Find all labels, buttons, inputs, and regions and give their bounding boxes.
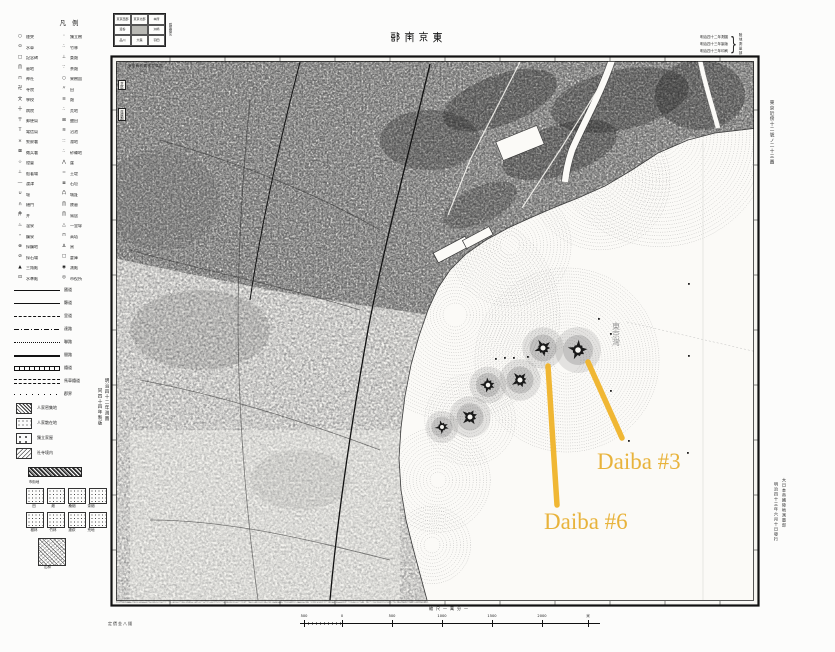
legend-symbol: □ xyxy=(14,56,26,61)
legend-symbol: ⊓ xyxy=(58,234,70,239)
legend-symbol: ⊗ xyxy=(14,245,26,250)
legend-line-row: 達路 xyxy=(14,323,116,336)
legend-line-row: 里道 xyxy=(14,310,116,323)
legend-row: ∘鑛泉⊓高塔 xyxy=(14,232,116,243)
legend-label: 畑 xyxy=(70,98,102,102)
legend-label: 砂礫地 xyxy=(70,151,102,155)
map-title xyxy=(391,32,442,42)
legend-label: 徴兵署 xyxy=(26,151,58,155)
legend-label: 高塔 xyxy=(70,235,102,239)
inmap-box-label-2: 荏原郡 xyxy=(118,108,126,121)
sheet-number-note: 東京近傍十二號ノ二十三圖 xyxy=(768,100,774,240)
legend-line-row: 縣道 xyxy=(14,297,116,310)
legend-line-label: 間路 xyxy=(64,353,72,357)
legend-pattern-label: 田 xyxy=(26,505,42,509)
index-grid-table: 東京西部東京北部本所澁谷洲崎品川大森羽田 xyxy=(113,13,166,47)
water-mark xyxy=(688,283,690,285)
island-center xyxy=(486,383,490,387)
legend-pattern-label: 竹林 xyxy=(45,529,61,533)
index-grid-cell: 洲崎 xyxy=(148,25,165,36)
legend-line-label: 鐵道 xyxy=(64,366,72,370)
legend-line-label: 縣道 xyxy=(64,301,72,305)
legend-symbol: ≣ xyxy=(58,182,70,187)
index-grid-cell: 品川 xyxy=(114,35,131,46)
legend-row: ⊠徴兵署∴砂礫地 xyxy=(14,148,116,159)
legend-label: 桑畑 xyxy=(70,56,102,60)
legend-symbol: ⊓ xyxy=(14,77,26,82)
scale-tick xyxy=(588,620,589,627)
scale-tick-label: 500 xyxy=(389,614,396,618)
scale-tick-label: 1500 xyxy=(487,614,496,618)
legend-label: 水車 xyxy=(26,46,58,50)
legend-symbol: ⊥ xyxy=(58,56,70,61)
legend-symbol: 卍 xyxy=(14,87,26,92)
index-grid-side-label: 隣接圖名 xyxy=(168,23,173,36)
legend-symbol: ∘ xyxy=(14,234,26,239)
scale-tick xyxy=(542,620,543,627)
legend-label: 測點 xyxy=(70,266,102,270)
legend-label: 渡津 xyxy=(26,182,58,186)
legend-label: 田 xyxy=(70,88,102,92)
legend-line-rows: 國道縣道里道達路聯路間路鐵道馬車鐵道郡界 xyxy=(14,284,116,401)
legend-symbol: 〃 xyxy=(58,87,70,92)
legend-pattern-cell xyxy=(47,512,65,528)
scanned-map-page: 東京灣 凡例 ○煙突◦獨立樹⊙水車∴竹林□記 xyxy=(0,0,835,652)
legend-extra-label: 獨立家屋 xyxy=(37,436,53,440)
legend-symbol: = xyxy=(58,171,70,176)
legend-symbol: ∏ xyxy=(58,203,70,208)
legend-label: 燈臺 xyxy=(26,161,58,165)
island-center xyxy=(575,347,581,353)
legend-line-row: 鐵道 xyxy=(14,362,116,375)
legend-symbol: ∷ xyxy=(58,140,70,145)
legend-symbol: ∴ xyxy=(58,150,70,155)
legend-symbol: ∪ xyxy=(14,192,26,197)
survey-note-2: 同四十四年製版 xyxy=(96,388,102,538)
legend-label: 煙突 xyxy=(26,35,58,39)
legend-forest-label: 山林 xyxy=(44,566,116,570)
scale-tick-label: 米 xyxy=(586,614,590,619)
inmap-box-label-1: 芝區 xyxy=(118,80,126,90)
legend-symbol: ⊙ xyxy=(14,45,26,50)
legend-label: 荒地 xyxy=(70,109,102,113)
legend-label: 井 xyxy=(26,214,58,218)
annotation-label: Daiba #6 xyxy=(544,509,628,535)
legend-label: 警察署 xyxy=(26,140,58,144)
legend-label: 陵墓 xyxy=(70,203,102,207)
legend-pattern-cell xyxy=(68,488,86,504)
legend-row: ⊙水車∴竹林 xyxy=(14,43,116,54)
legend-pattern-label: 桑畑 xyxy=(64,505,80,509)
index-grid-cell: 澁谷 xyxy=(114,25,131,36)
adjoining-sheet-index: 東京西部東京北部本所澁谷洲崎品川大森羽田 隣接圖名 xyxy=(113,13,173,47)
legend-symbol: × xyxy=(14,140,26,145)
scale-tick-label: 1000 xyxy=(437,614,446,618)
legend-label: 墓地 xyxy=(26,67,58,71)
legend-pattern-cell xyxy=(26,488,44,504)
legend-symbol: ⊠ xyxy=(14,150,26,155)
legend-urban-sample xyxy=(28,467,82,477)
legend-row: ∪堰凸城趾 xyxy=(14,190,116,201)
legend-symbol: ∵ xyxy=(58,66,70,71)
legend-line-sample xyxy=(14,366,60,371)
inmap-district-note: 東京府武藏國荏原郡 xyxy=(128,63,163,68)
legend-label: 石垣 xyxy=(70,182,102,186)
legend-row: ⊓神社○果樹園 xyxy=(14,74,116,85)
legend-symbol: ⊡ xyxy=(14,276,26,281)
legend-pattern-cell xyxy=(68,512,86,528)
legend-symbol: ▲ xyxy=(14,266,26,271)
legend-row: 文學校≡畑 xyxy=(14,95,116,106)
water-mark xyxy=(688,355,690,357)
legend-row: ⊘採石場□倉庫 xyxy=(14,253,116,264)
legend-label: 船著場 xyxy=(26,172,58,176)
water-mark xyxy=(495,358,497,360)
legend-line-label: 郡界 xyxy=(64,392,72,396)
legend-symbol: ⊞ xyxy=(58,119,70,124)
legend-label: 樋門 xyxy=(26,203,58,207)
legend-symbol: ◎ xyxy=(58,276,70,281)
water-mark xyxy=(513,357,515,359)
survey-note-1: 明治四十二年測圖 xyxy=(103,378,109,528)
legend-symbol: T xyxy=(14,129,26,134)
island-center xyxy=(440,425,444,429)
legend-label: 茶畑 xyxy=(70,67,102,71)
legend-extra-sample xyxy=(16,448,32,459)
legend-label: 三角點 xyxy=(26,266,58,270)
legend-label: 採石場 xyxy=(26,256,58,260)
legend-line-row: 馬車鐵道 xyxy=(14,375,116,388)
scale-tick xyxy=(442,620,443,627)
legend-symbol: △ xyxy=(58,224,70,229)
legend-line-sample xyxy=(14,329,60,330)
legend-label: 果樹園 xyxy=(70,77,102,81)
price-note: 定價金八錢 xyxy=(108,621,133,627)
legend-symbol: □ xyxy=(58,255,70,260)
bay-label: 東京灣 xyxy=(612,321,621,347)
water-mark xyxy=(628,440,630,442)
water-mark xyxy=(687,452,689,454)
legend-line-row: 間路 xyxy=(14,349,116,362)
legend-line-sample xyxy=(14,316,60,317)
index-grid-cell xyxy=(131,25,148,36)
legend-row: ▲三角點◉測點 xyxy=(14,263,116,274)
legend-label: 記念碑 xyxy=(26,56,58,60)
water-mark xyxy=(504,357,506,359)
legend-row: T電信局≋沼池 xyxy=(14,127,116,138)
legend-pattern-labels-2: 樹林竹林蘆荻荒地 xyxy=(26,529,116,533)
legend-symbol: ◉ xyxy=(58,266,70,271)
legend-row: ∏墓地∵茶畑 xyxy=(14,64,116,75)
legend-row: ⊥船著場=土堤 xyxy=(14,169,116,180)
legend-row: ♨温泉△一里塚 xyxy=(14,221,116,232)
legend-row: □記念碑⊥桑畑 xyxy=(14,53,116,64)
legend-line-row: 國道 xyxy=(14,284,116,297)
index-grid-cell: 東京西部 xyxy=(114,14,131,25)
legend-line-label: 達路 xyxy=(64,327,72,331)
legend-symbol: ∴ xyxy=(58,108,70,113)
legend-symbol: ∏ xyxy=(14,66,26,71)
legend-row: ⊡水準點◎市役所 xyxy=(14,274,116,285)
legend-symbol: ∩ xyxy=(14,203,26,208)
island-center xyxy=(467,414,472,419)
scale-tick xyxy=(392,620,393,627)
legend-pattern-cell xyxy=(47,488,65,504)
legend-symbol: ⊥ xyxy=(14,171,26,176)
legend-extra-label: 人家散在地 xyxy=(37,421,57,425)
scale-tick-label: 0 xyxy=(341,614,343,618)
legend-line-label: 國道 xyxy=(64,288,72,292)
legend-pattern-label: 樹林 xyxy=(26,529,42,533)
legend-line-label: 聯路 xyxy=(64,340,72,344)
legend-symbol: ≡ xyxy=(58,98,70,103)
legend-symbol: 十 xyxy=(14,108,26,113)
scale-track: 5000500100015002000米 xyxy=(300,614,600,630)
map-image: 東京灣 xyxy=(0,0,835,652)
brace-glyph: } xyxy=(730,33,737,55)
legend-symbol: ― xyxy=(14,182,26,187)
legend-label: 一里塚 xyxy=(70,224,102,228)
scale-hatch xyxy=(304,622,342,625)
legend-row: ×警察署∷濕地 xyxy=(14,137,116,148)
legend-label: 學校 xyxy=(26,98,58,102)
legend-label: 獨立樹 xyxy=(70,35,102,39)
legend-symbol: ♨ xyxy=(14,224,26,229)
legend-label: 倉庫 xyxy=(70,256,102,260)
legend-urban-label: 市街地 xyxy=(26,481,42,485)
legend-extra-label: 社寺境内 xyxy=(37,451,53,455)
edition-note: 明治四十二年測圖明治四十三年製版明治四十三年印刷 } 陸地測量部 xyxy=(700,33,744,55)
legend-forest-sample xyxy=(38,538,66,566)
scale-tick xyxy=(304,620,305,627)
legend-label: 温泉 xyxy=(26,224,58,228)
legend-row: 卍寺院〃田 xyxy=(14,85,116,96)
legend-label: 窯 xyxy=(70,245,102,249)
legend-row: 井井∏鳥居 xyxy=(14,211,116,222)
legend-label: 寺院 xyxy=(26,88,58,92)
index-grid-cell: 羽田 xyxy=(148,35,165,46)
island-center xyxy=(517,377,522,382)
legend-extra-sample xyxy=(16,433,32,444)
annotation-label: Daiba #3 xyxy=(597,449,681,475)
legend-label: 沼池 xyxy=(70,130,102,134)
scale-tick xyxy=(492,620,493,627)
edition-note-line: 明治四十三年製版 xyxy=(700,41,728,48)
legend-line-row: 聯路 xyxy=(14,336,116,349)
legend-line-sample xyxy=(14,394,60,395)
index-grid-cell: 本所 xyxy=(148,14,165,25)
legend-line-label: 馬車鐵道 xyxy=(64,379,80,383)
legend-label: 市役所 xyxy=(70,277,102,281)
legend-symbol: ∴ xyxy=(58,45,70,50)
legend-label: 濕地 xyxy=(70,140,102,144)
water-mark xyxy=(610,390,612,392)
legend-label: 電信局 xyxy=(26,130,58,134)
legend-line-sample xyxy=(14,342,60,343)
legend-label: 神社 xyxy=(26,77,58,81)
legend-symbol: ≋ xyxy=(58,129,70,134)
legend-line-sample xyxy=(14,355,60,357)
edition-note-lines: 明治四十二年測圖明治四十三年製版明治四十三年印刷 xyxy=(700,34,728,55)
legend-label: 水準點 xyxy=(26,277,58,281)
scale-bar: 縮尺一萬分一 5000500100015002000米 xyxy=(300,606,600,630)
legend-symbol: 凸 xyxy=(58,192,70,197)
scale-tick-label: 500 xyxy=(301,614,308,618)
legend-row: 十病院∴荒地 xyxy=(14,106,116,117)
legend-extra-label: 人家密集地 xyxy=(37,406,57,410)
legend-row: 〒郵便局⊞鹽田 xyxy=(14,116,116,127)
legend-symbol-rows: ○煙突◦獨立樹⊙水車∴竹林□記念碑⊥桑畑∏墓地∵茶畑⊓神社○果樹園卍寺院〃田文學… xyxy=(14,32,116,284)
legend-label: 堰 xyxy=(26,193,58,197)
legend-label: 竹林 xyxy=(70,46,102,50)
legend-row: ☆燈臺⋀崖 xyxy=(14,158,116,169)
legend-symbol: ∏ xyxy=(58,213,70,218)
legend-row: ○煙突◦獨立樹 xyxy=(14,32,116,43)
legend-pattern-cell xyxy=(26,512,44,528)
legend-symbol: 文 xyxy=(14,98,26,103)
island-center xyxy=(540,345,545,350)
legend-line-sample xyxy=(14,379,60,384)
legend-pattern-label: 蘆荻 xyxy=(64,529,80,533)
legend-symbol: 井 xyxy=(14,213,26,218)
legend-label: 鳥居 xyxy=(70,214,102,218)
water-mark xyxy=(598,318,600,320)
legend-label: 鹽田 xyxy=(70,119,102,123)
legend-label: 城趾 xyxy=(70,193,102,197)
legend-label: 郵便局 xyxy=(26,119,58,123)
legend-label: 採鑛地 xyxy=(26,245,58,249)
index-grid-cell: 東京北部 xyxy=(131,14,148,25)
legend-label: 土堤 xyxy=(70,172,102,176)
index-grid-cell: 大森 xyxy=(131,35,148,46)
publisher-note-1: 大日本帝國陸地測量部 xyxy=(781,478,787,593)
legend-symbol: ∆ xyxy=(58,245,70,250)
legend-symbol: ○ xyxy=(14,35,26,40)
legend-symbol: ☆ xyxy=(14,161,26,166)
legend-label: 病院 xyxy=(26,109,58,113)
legend-label: 鑛泉 xyxy=(26,235,58,239)
water-mark xyxy=(527,356,529,358)
legend-header: 凡例 xyxy=(28,20,116,27)
legend-pattern-label: 畑 xyxy=(45,505,61,509)
legend-row: ―渡津≣石垣 xyxy=(14,179,116,190)
legend-symbol: ○ xyxy=(58,77,70,82)
edition-note-line: 明治四十三年印刷 xyxy=(700,48,728,55)
scale-tick xyxy=(342,620,343,627)
legend-extra-sample xyxy=(16,418,32,429)
legend-line-sample xyxy=(14,290,60,291)
legend-symbol: ◦ xyxy=(58,35,70,40)
edition-note-line: 明治四十二年測圖 xyxy=(700,34,728,41)
legend-symbol: ⋀ xyxy=(58,161,70,166)
legend-symbol: 〒 xyxy=(14,119,26,124)
scale-tick-label: 2000 xyxy=(537,614,546,618)
legend-extra-sample xyxy=(16,403,32,414)
legend-symbol: ⊘ xyxy=(14,255,26,260)
legend-label: 崖 xyxy=(70,161,102,165)
legend-row: ⊗採鑛地∆窯 xyxy=(14,242,116,253)
legend-line-label: 里道 xyxy=(64,314,72,318)
scale-line xyxy=(300,623,600,624)
publisher-note-2: 明治四十三年六月十日發行 xyxy=(773,482,779,597)
legend-line-sample xyxy=(14,303,60,304)
legend-row: ∩樋門∏陵墓 xyxy=(14,200,116,211)
scale-caption: 縮尺一萬分一 xyxy=(300,606,600,612)
edition-note-right: 陸地測量部 xyxy=(739,33,744,55)
